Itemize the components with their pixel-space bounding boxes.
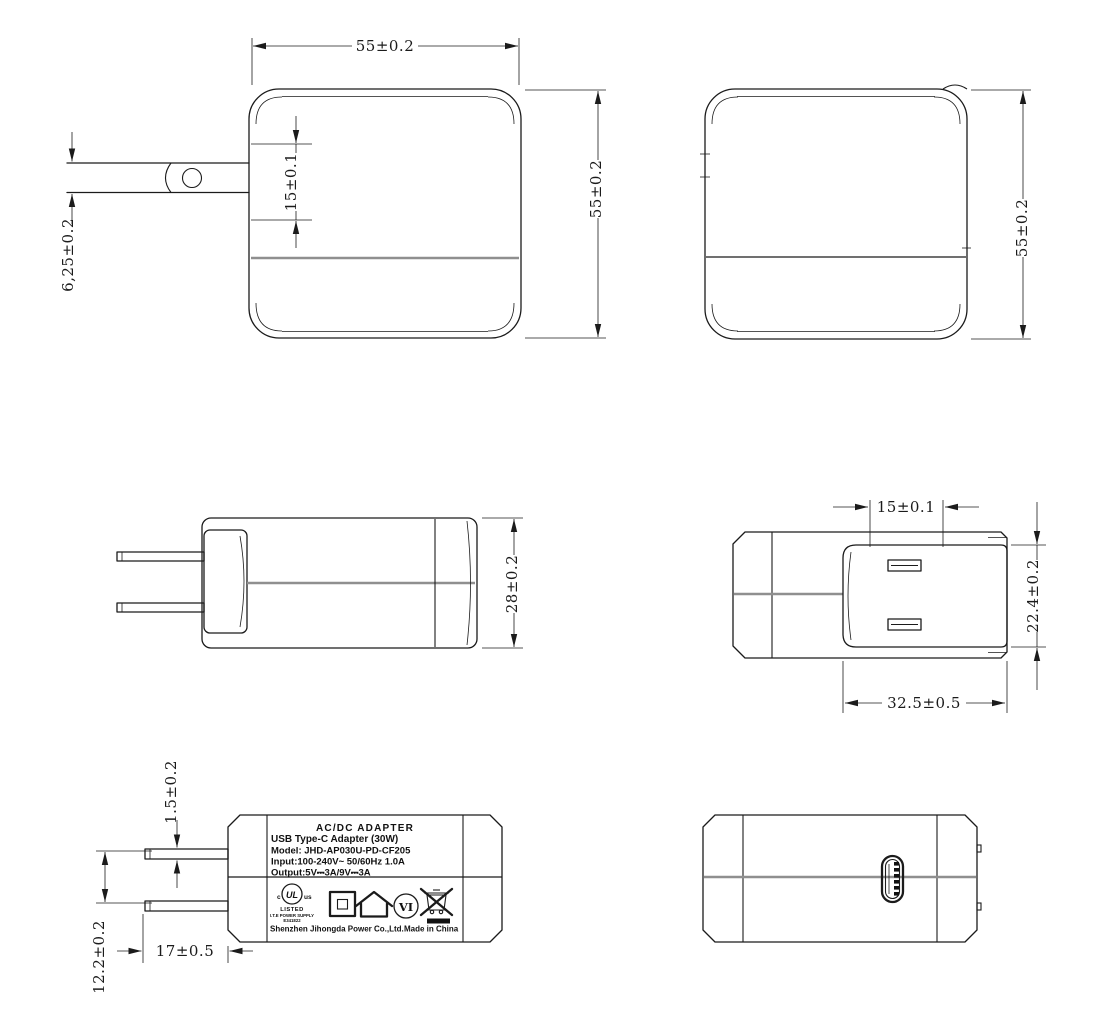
indoor-use-icon: [356, 892, 392, 917]
dim-front-height-text: 55±0.2: [587, 160, 605, 219]
dim-prong-gap-text: 12.2±0.2: [90, 920, 108, 994]
svg-text:E341822: E341822: [283, 918, 301, 923]
label-prongs: [145, 849, 228, 911]
front-view: 55±0.2 55±0.2 15±0.1 6,25±0.2: [59, 37, 606, 338]
product-label: AC/DC ADAPTER USB Type-C Adapter (30W) M…: [270, 823, 459, 934]
label-output: Output:5V⎓3A/9V⎓3A: [271, 868, 371, 879]
prong-hole: [183, 169, 202, 188]
weee-bin-icon: [421, 889, 452, 924]
dim-front-recess-text: 15±0.1: [282, 153, 300, 212]
prong-fold-arc: [166, 163, 172, 193]
dim-prong-length: 17±0.5: [117, 914, 253, 963]
dim-top-prong-pitch-text: 15±0.1: [877, 498, 936, 516]
dim-prong-width: 6,25±0.2: [59, 132, 77, 292]
rear-corner-tab: [943, 85, 967, 89]
dim-front-recess: 15±0.1: [251, 116, 312, 248]
label-title: AC/DC ADAPTER: [316, 823, 414, 834]
dim-front-width: 55±0.2: [252, 37, 519, 85]
dim-prong-length-text: 17±0.5: [156, 942, 215, 960]
weee-bar: [427, 919, 450, 924]
label-model: Model: JHD-AP030U-PD-CF205: [271, 846, 411, 857]
class-ii-icon: [330, 892, 355, 916]
top-prong-slots: [888, 560, 921, 630]
front-body-outline: [249, 89, 521, 338]
label-input: Input:100-240V~ 50/60Hz 1.0A: [271, 857, 405, 868]
svg-text:c: c: [277, 894, 281, 901]
bottom-body-outline: [703, 815, 977, 942]
dim-top-face-depth-text: 22.4±0.2: [1024, 559, 1042, 633]
dim-side-depth-text: 28±0.2: [503, 555, 521, 614]
side-view: 28±0.2: [117, 518, 523, 648]
dim-prong-thickness: 1.5±0.2: [162, 760, 180, 888]
rear-view: 55±0.2: [700, 85, 1031, 339]
rear-body-outline: [705, 89, 967, 339]
dim-prong-thickness-text: 1.5±0.2: [162, 760, 180, 824]
dim-front-width-text: 55±0.2: [356, 37, 415, 55]
technical-drawing-page: 55±0.2 55±0.2 15±0.1 6,25±0.2: [0, 0, 1100, 1011]
top-view: 15±0.1 22.4±0.2 32.5±0.5: [733, 498, 1046, 713]
label-company: Shenzhen Jihongda Power Co.,Ltd.: [270, 925, 404, 934]
dim-front-height: 55±0.2: [525, 90, 606, 338]
dim-top-face-depth: 22.4±0.2: [1011, 502, 1046, 690]
dim-top-face-width-text: 32.5±0.5: [887, 694, 961, 712]
label-made-in: Made in China: [404, 925, 459, 934]
dim-prong-width-text: 6,25±0.2: [59, 218, 77, 292]
label-view: AC/DC ADAPTER USB Type-C Adapter (30W) M…: [90, 760, 502, 994]
dim-side-depth: 28±0.2: [482, 518, 523, 648]
adapter-drawing-svg: 55±0.2 55±0.2 15±0.1 6,25±0.2: [0, 0, 1100, 1011]
svg-text:UL: UL: [286, 890, 298, 900]
dim-top-face-width: 32.5±0.5: [843, 661, 1007, 713]
dim-rear-height-text: 55±0.2: [1013, 199, 1031, 258]
bottom-view: [703, 815, 981, 942]
top-plug-face: [843, 545, 1007, 647]
dim-rear-height: 55±0.2: [971, 90, 1031, 339]
ul-listed-mark: UL c us LISTED I.T.E POWER SUPPLY E34182…: [270, 884, 314, 923]
ac-prong-profile: [67, 163, 249, 193]
label-subtitle: USB Type-C Adapter (30W): [271, 834, 398, 845]
efficiency-vi-icon: VI: [394, 894, 418, 918]
side-prongs: [117, 552, 204, 612]
dim-top-prong-pitch: 15±0.1: [833, 498, 979, 547]
svg-text:us: us: [304, 894, 312, 901]
side-plug-plate: [204, 530, 247, 633]
efficiency-vi-text: VI: [398, 900, 413, 914]
usb-c-port: [882, 856, 903, 902]
